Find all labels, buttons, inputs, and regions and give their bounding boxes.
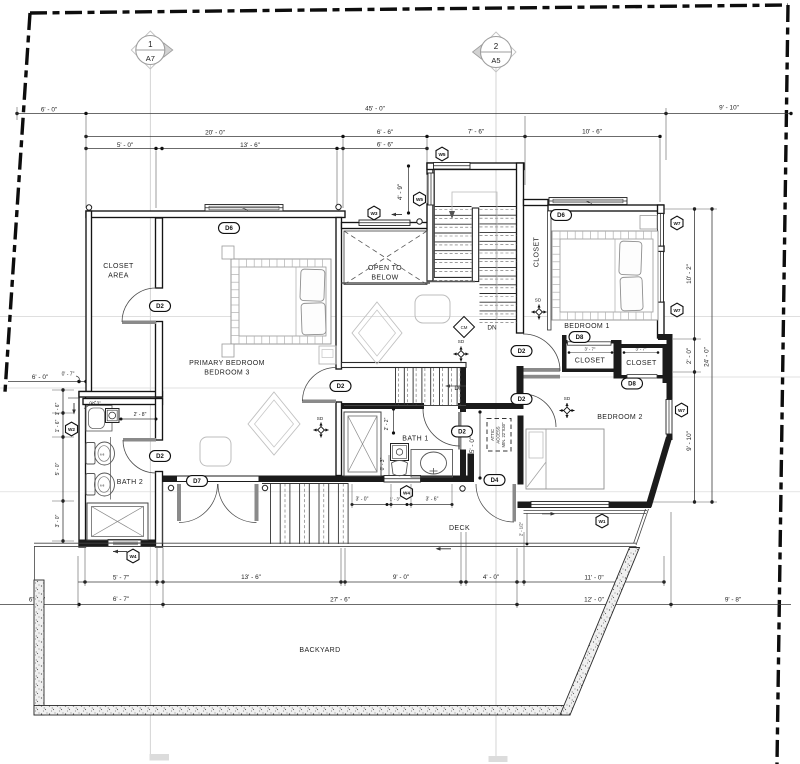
svg-text:W7: W7 xyxy=(673,308,680,313)
svg-text:D4: D4 xyxy=(491,478,499,484)
svg-text:SD: SD xyxy=(535,298,542,303)
svg-text:W1: W1 xyxy=(598,519,605,524)
svg-text:AREA: AREA xyxy=(108,273,129,280)
svg-text:9' - 10": 9' - 10" xyxy=(719,105,739,112)
svg-text:D8: D8 xyxy=(576,335,584,341)
svg-text:A5: A5 xyxy=(491,56,500,65)
svg-text:D2: D2 xyxy=(156,454,164,460)
svg-text:0' - 3": 0' - 3" xyxy=(380,457,386,470)
svg-text:OPEN TO: OPEN TO xyxy=(368,265,402,272)
svg-text:D2: D2 xyxy=(337,384,345,390)
svg-text:W2: W2 xyxy=(68,427,75,432)
svg-text:ACCESS: ACCESS xyxy=(496,426,501,443)
svg-text:5' - 0": 5' - 0" xyxy=(55,462,61,475)
svg-text:5' - 0": 5' - 0" xyxy=(469,437,476,453)
svg-text:6' - 7": 6' - 7" xyxy=(113,596,129,603)
svg-text:CLOSET: CLOSET xyxy=(103,263,134,270)
svg-text:CM: CM xyxy=(461,325,468,330)
svg-text:0' - 7": 0' - 7" xyxy=(62,372,75,378)
svg-text:3' - 0": 3' - 0" xyxy=(55,514,61,527)
svg-text:6-8: 6-8 xyxy=(100,484,105,488)
svg-text:BATH 1: BATH 1 xyxy=(402,436,428,443)
svg-text:CLOSET: CLOSET xyxy=(534,236,541,267)
svg-text:BEDROOM 3: BEDROOM 3 xyxy=(204,370,250,377)
svg-text:BEDROOM 1: BEDROOM 1 xyxy=(564,323,610,330)
svg-text:9' - 10": 9' - 10" xyxy=(686,431,693,451)
svg-text:7' - 6": 7' - 6" xyxy=(468,129,484,136)
svg-text:6' - 6": 6' - 6" xyxy=(377,129,393,136)
svg-text:4' - 0": 4' - 0" xyxy=(483,574,499,581)
svg-text:W5: W5 xyxy=(438,152,445,157)
svg-text:0' - 3": 0' - 3" xyxy=(89,401,101,406)
svg-text:PRIMARY BEDROOM: PRIMARY BEDROOM xyxy=(189,360,265,367)
svg-text:5' - 7": 5' - 7" xyxy=(113,575,129,582)
svg-text:27' - 6": 27' - 6" xyxy=(330,597,350,604)
svg-text:MIN. 22"X30": MIN. 22"X30" xyxy=(501,422,506,448)
svg-text:W4: W4 xyxy=(129,554,136,559)
svg-text:D7: D7 xyxy=(193,479,201,485)
svg-text:SD: SD xyxy=(458,339,465,344)
svg-text:2: 2 xyxy=(494,42,499,51)
svg-text:10' - 6": 10' - 6" xyxy=(582,129,602,136)
svg-text:ATTIC: ATTIC xyxy=(490,429,495,441)
svg-text:A7: A7 xyxy=(146,54,155,63)
svg-text:D8: D8 xyxy=(628,382,636,388)
svg-text:D2: D2 xyxy=(518,397,526,403)
svg-text:CLOSET: CLOSET xyxy=(626,360,657,367)
svg-text:5' - 0": 5' - 0" xyxy=(117,142,133,149)
svg-text:SD: SD xyxy=(317,416,324,421)
svg-text:10' - 2": 10' - 2" xyxy=(686,264,693,284)
svg-text:9' - 8": 9' - 8" xyxy=(725,597,741,604)
svg-text:45' - 0": 45' - 0" xyxy=(365,106,385,113)
svg-text:6-8: 6-8 xyxy=(100,453,105,457)
svg-text:3' - 0": 3' - 0" xyxy=(356,497,369,503)
svg-text:SD: SD xyxy=(564,396,571,401)
svg-text:4' - 9": 4' - 9" xyxy=(397,184,404,200)
svg-text:DN: DN xyxy=(487,325,497,332)
svg-text:3' - 7": 3' - 7" xyxy=(636,347,647,352)
svg-text:2' - 1/2": 2' - 1/2" xyxy=(519,521,524,536)
svg-text:3' - 7": 3' - 7" xyxy=(585,347,596,352)
svg-text:13' - 6": 13' - 6" xyxy=(241,574,261,581)
svg-text:D6: D6 xyxy=(225,226,233,232)
svg-text:13' - 6": 13' - 6" xyxy=(240,142,260,149)
svg-text:2' - 2": 2' - 2" xyxy=(384,417,390,430)
svg-text:W4: W4 xyxy=(403,491,410,496)
svg-text:2' - 0": 2' - 0" xyxy=(686,348,693,364)
svg-text:1' - 6": 1' - 6" xyxy=(55,419,61,432)
svg-text:D2: D2 xyxy=(156,304,164,310)
svg-text:D2: D2 xyxy=(518,349,526,355)
svg-text:20' - 0": 20' - 0" xyxy=(205,130,225,137)
svg-text:24' - 0": 24' - 0" xyxy=(704,347,711,367)
svg-text:2' - 8": 2' - 8" xyxy=(134,412,147,418)
svg-text:W3: W3 xyxy=(370,211,377,216)
svg-text:1: 1 xyxy=(148,40,153,49)
svg-text:11' - 0": 11' - 0" xyxy=(584,575,603,582)
svg-text:BATH 2: BATH 2 xyxy=(117,479,143,486)
svg-text:BELOW: BELOW xyxy=(371,275,398,282)
svg-text:W5: W5 xyxy=(416,197,423,202)
svg-text:D2: D2 xyxy=(458,430,466,436)
svg-text:D6: D6 xyxy=(557,213,565,219)
svg-text:CLOSET: CLOSET xyxy=(575,358,606,365)
svg-text:6' - 6": 6' - 6" xyxy=(377,141,393,148)
svg-text:9' - 0": 9' - 0" xyxy=(393,574,409,581)
svg-text:W7: W7 xyxy=(673,221,680,226)
svg-text:DECK: DECK xyxy=(449,525,470,532)
svg-text:1' - 3": 1' - 3" xyxy=(390,497,401,502)
svg-text:6' - 0": 6' - 0" xyxy=(32,374,48,381)
svg-text:BEDROOM 2: BEDROOM 2 xyxy=(597,414,643,421)
svg-text:1' - 6": 1' - 6" xyxy=(55,402,61,415)
svg-text:6' - 0": 6' - 0" xyxy=(41,107,57,114)
svg-text:BACKYARD: BACKYARD xyxy=(299,647,340,654)
svg-text:3' - 6": 3' - 6" xyxy=(426,497,439,503)
svg-text:W7: W7 xyxy=(678,408,685,413)
svg-text:12' - 0": 12' - 0" xyxy=(584,597,604,604)
